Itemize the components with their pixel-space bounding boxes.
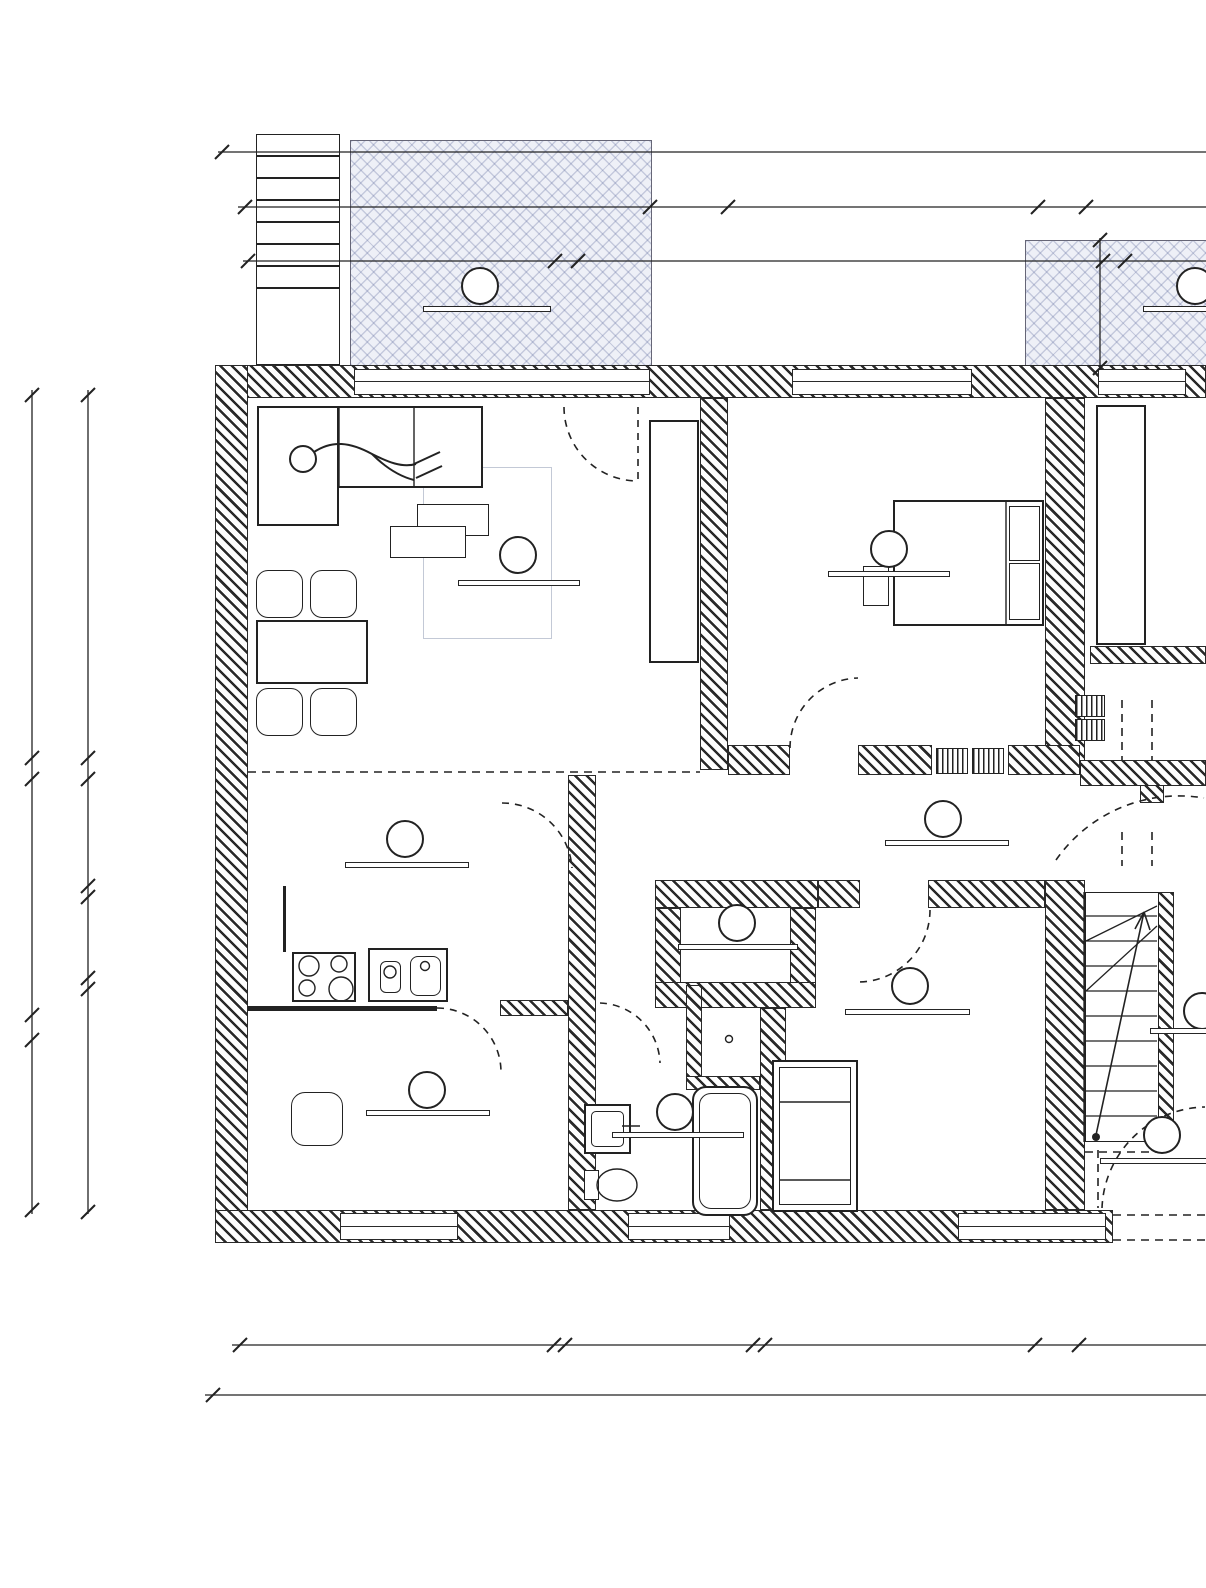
- furniture-details: [299, 407, 1006, 1201]
- door-arc: [790, 678, 858, 748]
- plan-graphics: [0, 0, 1206, 1588]
- unit-marker: [1176, 267, 1206, 305]
- unit-marker: [408, 1071, 446, 1109]
- unit-marker: [656, 1093, 694, 1131]
- unit-marker: [499, 536, 537, 574]
- stair-treads: [1084, 892, 1157, 1142]
- boundary-dashes: [248, 700, 1206, 1240]
- door-arc: [564, 407, 638, 481]
- room-label-terrasse-2: [1143, 306, 1206, 312]
- floor-plan: [0, 0, 1206, 1588]
- unit-marker: [461, 267, 499, 305]
- unit-marker: [924, 800, 962, 838]
- dimension-ticks: [25, 145, 1132, 1402]
- room-label-schlafen: [828, 571, 950, 577]
- room-label-abstell: [678, 944, 798, 950]
- door-arc: [600, 1003, 660, 1063]
- door-arc: [437, 1008, 501, 1072]
- unit-marker: [891, 967, 929, 1005]
- room-label-eingangsbereich: [1100, 1158, 1206, 1164]
- room-label-arbeit: [366, 1110, 490, 1116]
- room-label-flurbereich: [1150, 1028, 1206, 1034]
- room-label-flurzone: [885, 840, 1009, 846]
- unit-marker: [870, 530, 908, 568]
- room-label-kochen: [345, 862, 469, 868]
- dimension-lines: [32, 152, 1206, 1395]
- room-label-wohnen: [458, 580, 580, 586]
- unit-marker: [386, 820, 424, 858]
- door-arc: [502, 803, 572, 868]
- person-figure: [290, 444, 442, 480]
- door-arcs: [437, 407, 1205, 1208]
- room-label-badezimmer: [612, 1132, 744, 1138]
- stair-direction-arrow: [1092, 912, 1150, 1141]
- room-label-terrasse-1: [423, 306, 551, 312]
- entry-door-arc: [1056, 796, 1204, 860]
- unit-marker: [718, 904, 756, 942]
- unit-marker: [1143, 1116, 1181, 1154]
- room-label-kind: [845, 1009, 970, 1015]
